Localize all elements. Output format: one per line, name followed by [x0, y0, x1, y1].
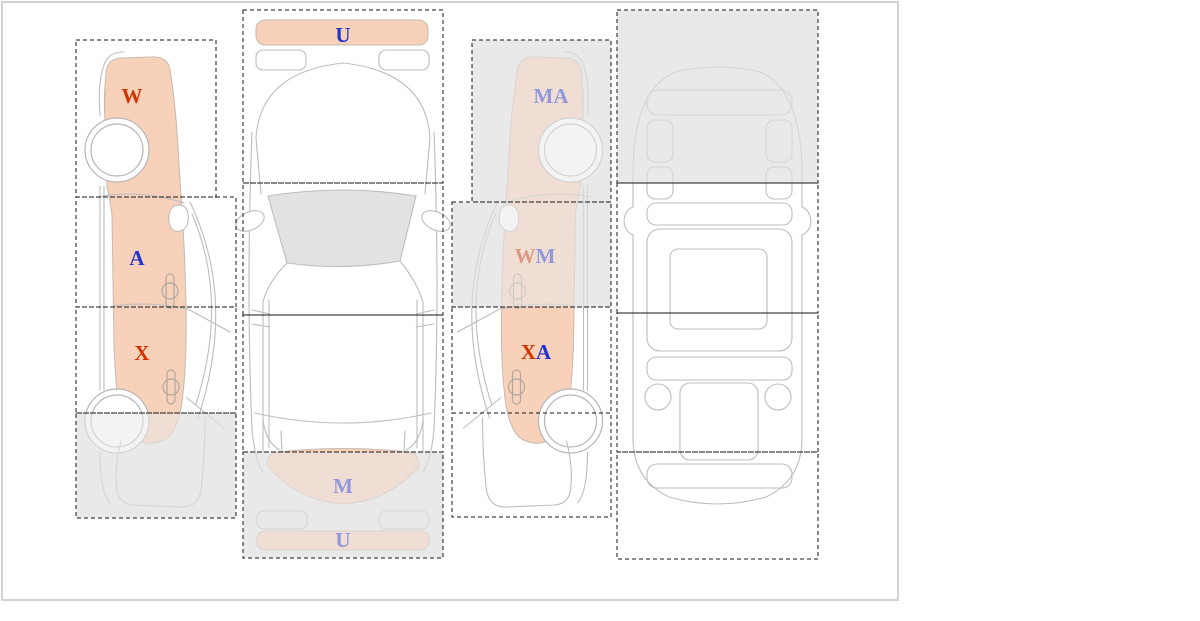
headlight-right [379, 50, 429, 70]
headlight-left [256, 50, 306, 70]
damage-code-right-rear-door: XA [521, 340, 552, 364]
damage-code-right-rear-door-x: X [521, 340, 536, 364]
left-rear-quarter-overlay [76, 413, 236, 518]
damage-code-left-front-door: A [129, 246, 145, 270]
vehicle-damage-diagram: W A X [0, 0, 1200, 621]
damage-code-left-rear-door: X [134, 341, 149, 365]
diagram-canvas: W A X [0, 0, 1200, 621]
underbody-front-overlay [617, 10, 818, 183]
right-fender-overlay [472, 40, 611, 202]
damage-code-left-fender: W [122, 84, 143, 108]
damage-code-right-rear-door-a: A [536, 340, 552, 364]
right-front-door-overlay [452, 202, 611, 307]
windshield [268, 190, 416, 267]
top-rear-overlay [243, 452, 443, 558]
damage-code-front-bumper: U [335, 23, 350, 47]
